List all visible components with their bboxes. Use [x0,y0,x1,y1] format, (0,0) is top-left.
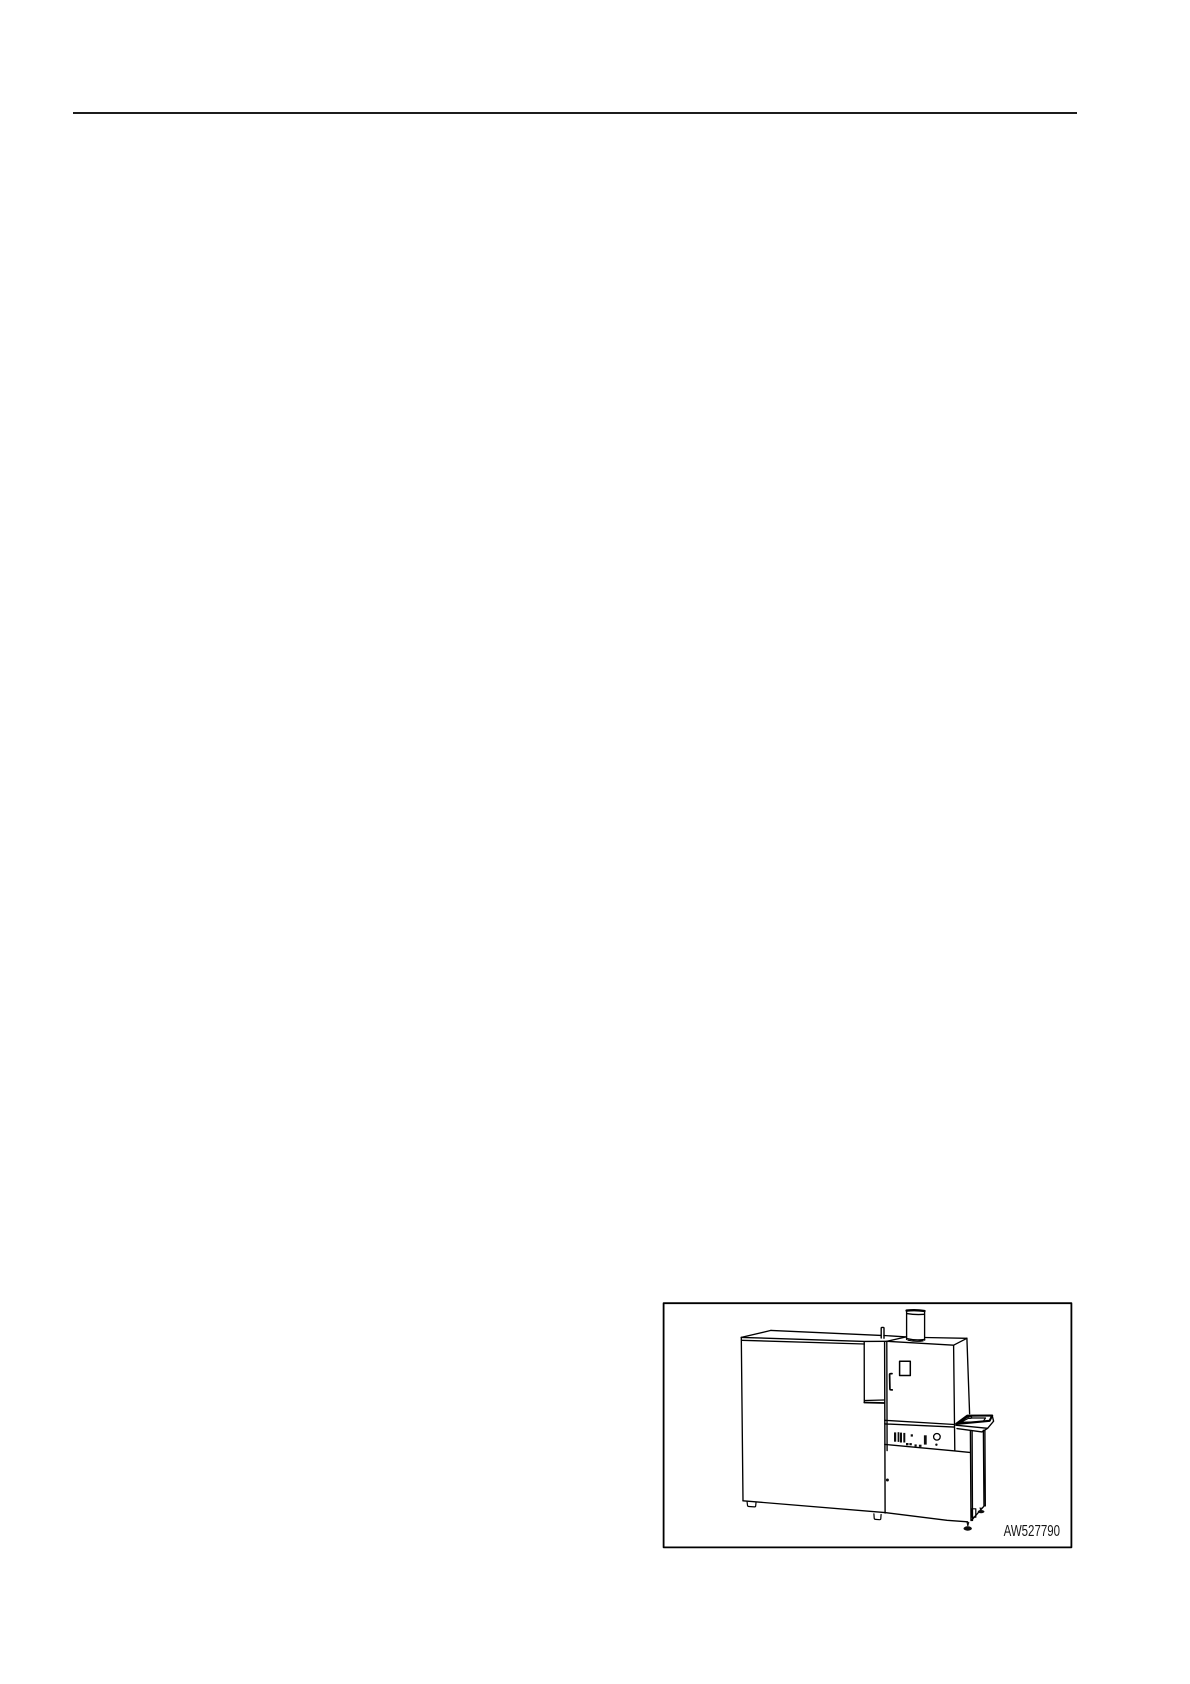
svg-text:AW527790: AW527790 [1004,1523,1060,1541]
